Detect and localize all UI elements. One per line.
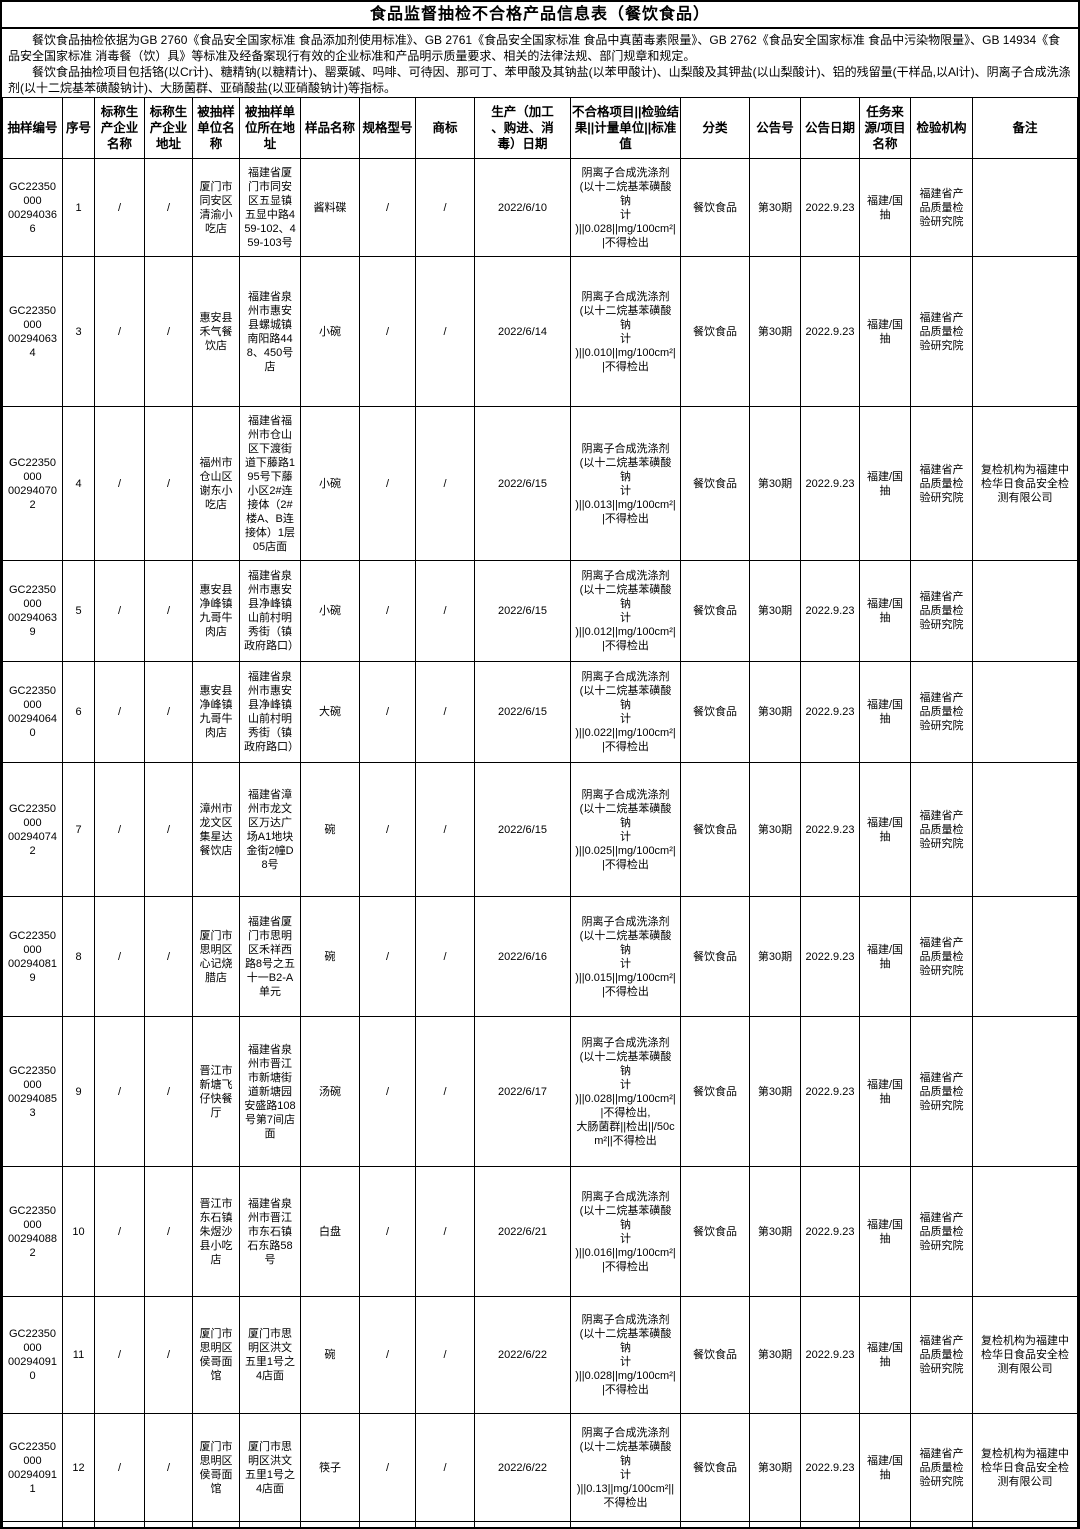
table-cell: GC22350000 002940742 (3, 763, 63, 897)
table-row: GC22350000 0029406406//惠安县净峰镇九哥牛肉店福建省泉州市… (3, 662, 1078, 763)
table-cell (193, 1522, 240, 1529)
table-cell (475, 1522, 571, 1529)
col-header-sample-number: 抽样编号 (3, 98, 63, 159)
table-cell: 9 (63, 1017, 95, 1167)
table-cell: 小碗 (301, 257, 360, 407)
table-body: GC22350000 0029403661//厦门市同安区清渝小吃店福建省厦门市… (3, 159, 1078, 1529)
table-cell: / (416, 159, 475, 257)
table-cell: 福建省漳州市龙文区万达广场A1地块金街2幢D8号 (240, 763, 301, 897)
table-cell: 福建省产品质量检验研究院 (911, 662, 973, 763)
table-cell: 餐饮食品 (681, 561, 750, 662)
table-cell: / (145, 257, 193, 407)
table-cell (63, 1522, 95, 1529)
col-header-inspection-agency: 检验机构 (911, 98, 973, 159)
table-cell: / (416, 662, 475, 763)
table-cell: 福建省厦门市思明区禾祥西路8号之五十一B2-A单元 (240, 897, 301, 1017)
table-cell: 10 (63, 1167, 95, 1297)
table-cell: 12 (63, 1414, 95, 1522)
table-cell: / (416, 1167, 475, 1297)
table-cell: / (95, 159, 145, 257)
table-cell: 第30期 (750, 1414, 801, 1522)
table-cell: 2022/6/15 (475, 662, 571, 763)
table-cell: 福建/国抽 (860, 1414, 911, 1522)
table-cell: 餐饮食品 (681, 897, 750, 1017)
table-cell (571, 1522, 681, 1529)
col-header-index: 序号 (63, 98, 95, 159)
table-cell: 福建/国抽 (860, 763, 911, 897)
table-cell: / (360, 662, 416, 763)
table-cell: 2022.9.23 (801, 1167, 860, 1297)
table-cell: 2022/6/17 (475, 1017, 571, 1167)
table-cell: / (360, 561, 416, 662)
table-cell: 福建/国抽 (860, 257, 911, 407)
table-cell: / (145, 407, 193, 561)
table-cell: 8 (63, 897, 95, 1017)
table-cell (416, 1522, 475, 1529)
table-cell: / (416, 1297, 475, 1414)
table-cell: 福建省泉州市晋江市东石镇石东路58号 (240, 1167, 301, 1297)
table-cell (301, 1522, 360, 1529)
table-cell: 餐饮食品 (681, 159, 750, 257)
table-cell: 福建省泉州市惠安县净峰镇山前村明秀街（镇政府路口） (240, 561, 301, 662)
table-cell: 阴离子合成洗涤剂 (以十二烷基苯磺酸钠 计 )||0.010||mg/100cm… (571, 257, 681, 407)
table-cell: / (145, 1297, 193, 1414)
table-cell: 第30期 (750, 662, 801, 763)
table-cell: 2022.9.23 (801, 1017, 860, 1167)
table-cell: 福建/国抽 (860, 1017, 911, 1167)
table-cell: 福建省产品质量检验研究院 (911, 763, 973, 897)
table-row: GC22350000 0029407427//漳州市龙文区集星达餐饮店福建省漳州… (3, 763, 1078, 897)
table-cell: 碗 (301, 763, 360, 897)
table-cell: / (360, 257, 416, 407)
table-cell: / (95, 561, 145, 662)
table-cell: 大碗 (301, 662, 360, 763)
table-cell: 福建省泉州市惠安县螺城镇南阳路448、450号店 (240, 257, 301, 407)
table-cell: 6 (63, 662, 95, 763)
table-cell: 餐饮食品 (681, 1167, 750, 1297)
table-cell: 白盘 (301, 1167, 360, 1297)
table-cell: 福建/国抽 (860, 561, 911, 662)
table-cell: / (145, 1414, 193, 1522)
table-cell: 阴离子合成洗涤剂 (以十二烷基苯磺酸钠 计 )||0.022||mg/100cm… (571, 662, 681, 763)
table-cell: 2022.9.23 (801, 1297, 860, 1414)
table-cell: 餐饮食品 (681, 1297, 750, 1414)
table-cell: GC22350000 002940910 (3, 1297, 63, 1414)
table-cell: / (360, 1297, 416, 1414)
table-row: GC22350000 0029403661//厦门市同安区清渝小吃店福建省厦门市… (3, 159, 1078, 257)
inspection-table: 抽样编号 序号 标称生产企业名称 标称生产企业地址 被抽样单位名称 被抽样单位所… (2, 97, 1078, 1529)
table-cell: 阴离子合成洗涤剂 (以十二烷基苯磺酸钠 计 )||0.016||mg/100cm… (571, 1167, 681, 1297)
table-cell: 2022/6/16 (475, 897, 571, 1017)
table-cell: 阴离子合成洗涤剂 (以十二烷基苯磺酸钠 计 )||0.025||mg/100cm… (571, 763, 681, 897)
table-cell: 2022/6/15 (475, 407, 571, 561)
table-cell: 2022/6/21 (475, 1167, 571, 1297)
table-cell: 厦门市思明区心记烧腊店 (193, 897, 240, 1017)
table-cell (973, 1522, 1078, 1529)
table-cell: 复检机构为福建中检华日食品安全检测有限公司 (973, 1297, 1078, 1414)
table-cell: 2022.9.23 (801, 257, 860, 407)
table-cell: 2022/6/15 (475, 561, 571, 662)
table-cell: 第30期 (750, 561, 801, 662)
table-cell (3, 1522, 63, 1529)
table-cell: 餐饮食品 (681, 407, 750, 561)
inspection-report-document: 食品监督抽检不合格产品信息表（餐饮食品） 餐饮食品抽检依据为GB 2760《食品… (0, 0, 1080, 1529)
table-cell: 厦门市思明区洪文五里1号之4店面 (240, 1297, 301, 1414)
table-cell: / (95, 662, 145, 763)
table-cell: 第30期 (750, 1167, 801, 1297)
table-cell: 5 (63, 561, 95, 662)
table-row: GC22350000 00294091011//厦门市思明区侯哥面馆厦门市思明区… (3, 1297, 1078, 1414)
table-cell: 餐饮食品 (681, 1017, 750, 1167)
table-cell: 第30期 (750, 1017, 801, 1167)
table-row: GC22350000 0029408539//晋江市新塘飞仔快餐厅福建省泉州市晋… (3, 1017, 1078, 1167)
intro-paragraph-basis: 餐饮食品抽检依据为GB 2760《食品安全国家标准 食品添加剂使用标准》、GB … (8, 32, 1072, 64)
table-cell: 筷子 (301, 1414, 360, 1522)
col-header-sampled-unit-address: 被抽样单位所在地址 (240, 98, 301, 159)
table-cell: GC22350000 002940819 (3, 897, 63, 1017)
table-cell: 福州市仓山区谢东小吃店 (193, 407, 240, 561)
col-header-sampled-unit-name: 被抽样单位名称 (193, 98, 240, 159)
table-cell: 2022/6/22 (475, 1414, 571, 1522)
table-cell: 漳州市龙文区集星达餐饮店 (193, 763, 240, 897)
table-cell: 小碗 (301, 407, 360, 561)
col-header-category: 分类 (681, 98, 750, 159)
table-cell (681, 1522, 750, 1529)
table-cell: 2022.9.23 (801, 561, 860, 662)
table-cell: 阴离子合成洗涤剂 (以十二烷基苯磺酸钠 计 )||0.013||mg/100cm… (571, 407, 681, 561)
table-cell: 福建/国抽 (860, 662, 911, 763)
table-cell: 福建省产品质量检验研究院 (911, 897, 973, 1017)
table-cell: GC22350000 002940702 (3, 407, 63, 561)
table-cell: / (360, 1017, 416, 1167)
table-cell: 阴离子合成洗涤剂 (以十二烷基苯磺酸钠 计 )||0.015||mg/100cm… (571, 897, 681, 1017)
table-cell: / (416, 257, 475, 407)
table-cell: 复检机构为福建中检华日食品安全检测有限公司 (973, 407, 1078, 561)
table-cell: 复检机构为福建中检华日食品安全检测有限公司 (973, 1414, 1078, 1522)
table-cell: 第30期 (750, 897, 801, 1017)
table-cell: 福建/国抽 (860, 1297, 911, 1414)
table-row: GC22350000 0029406395//惠安县净峰镇九哥牛肉店福建省泉州市… (3, 561, 1078, 662)
table-cell: 3 (63, 257, 95, 407)
table-row: GC22350000 0029407024//福州市仓山区谢东小吃店福建省福州市… (3, 407, 1078, 561)
table-cell (973, 159, 1078, 257)
table-cell: 第30期 (750, 763, 801, 897)
table-cell: 阴离子合成洗涤剂 (以十二烷基苯磺酸钠 计 )||0.028||mg/100cm… (571, 159, 681, 257)
table-cell: / (416, 897, 475, 1017)
table-cell (801, 1522, 860, 1529)
table-cell: / (145, 763, 193, 897)
col-header-notice-date: 公告日期 (801, 98, 860, 159)
col-header-remarks: 备注 (973, 98, 1078, 159)
table-cell (911, 1522, 973, 1529)
table-cell: 第30期 (750, 159, 801, 257)
table-cell: / (95, 1297, 145, 1414)
table-cell: 2022/6/22 (475, 1297, 571, 1414)
table-cell: / (145, 897, 193, 1017)
table-cell (95, 1522, 145, 1529)
table-cell: 厦门市同安区清渝小吃店 (193, 159, 240, 257)
table-cell: 福建/国抽 (860, 159, 911, 257)
table-cell: / (416, 763, 475, 897)
table-cell: GC22350000 002940853 (3, 1017, 63, 1167)
table-cell: / (95, 1017, 145, 1167)
table-row: GC22350000 0029406343//惠安县禾气餐饮店福建省泉州市惠安县… (3, 257, 1078, 407)
table-cell: 福建省产品质量检验研究院 (911, 1297, 973, 1414)
table-cell: 阴离子合成洗涤剂 (以十二烷基苯磺酸钠 计 )||0.13||mg/100cm²… (571, 1414, 681, 1522)
table-cell: / (360, 1414, 416, 1522)
table-cell: 福建/国抽 (860, 407, 911, 561)
table-cell: 阴离子合成洗涤剂 (以十二烷基苯磺酸钠 计 )||0.028||mg/100cm… (571, 1017, 681, 1167)
table-cell: 福建省产品质量检验研究院 (911, 561, 973, 662)
col-header-spec-model: 规格型号 (360, 98, 416, 159)
table-cell: 福建/国抽 (860, 897, 911, 1017)
table-cell: 2022/6/10 (475, 159, 571, 257)
table-cell: 福建省产品质量检验研究院 (911, 1414, 973, 1522)
table-cell: 碗 (301, 1297, 360, 1414)
table-cell: 2022/6/15 (475, 763, 571, 897)
intro-paragraph-items: 餐饮食品抽检项目包括铬(以Cr计)、糖精钠(以糖精计)、罂粟碱、吗啡、可待因、那… (8, 64, 1072, 96)
table-cell (973, 897, 1078, 1017)
table-cell: / (360, 763, 416, 897)
table-cell: 福建省产品质量检验研究院 (911, 159, 973, 257)
table-cell: 晋江市东石镇朱煜沙县小吃店 (193, 1167, 240, 1297)
table-cell (860, 1522, 911, 1529)
table-cell: / (95, 257, 145, 407)
table-cell: / (416, 407, 475, 561)
col-header-producer-name: 标称生产企业名称 (95, 98, 145, 159)
table-cell: / (95, 407, 145, 561)
table-row-partial (3, 1522, 1078, 1529)
table-cell (973, 763, 1078, 897)
table-cell: 第30期 (750, 407, 801, 561)
table-cell: 餐饮食品 (681, 257, 750, 407)
table-cell: GC22350000 002940639 (3, 561, 63, 662)
table-cell: 福建省泉州市惠安县净峰镇山前村明秀街（镇政府路口） (240, 662, 301, 763)
table-cell: / (360, 1167, 416, 1297)
table-cell: 汤碗 (301, 1017, 360, 1167)
table-cell: 7 (63, 763, 95, 897)
table-cell: 阴离子合成洗涤剂 (以十二烷基苯磺酸钠 计 )||0.012||mg/100cm… (571, 561, 681, 662)
table-cell: 福建省厦门市同安区五显镇五显中路459-102、459-103号 (240, 159, 301, 257)
table-cell: 惠安县禾气餐饮店 (193, 257, 240, 407)
table-cell: 小碗 (301, 561, 360, 662)
table-cell: GC22350000 002940366 (3, 159, 63, 257)
table-cell: 第30期 (750, 257, 801, 407)
table-cell (973, 257, 1078, 407)
table-cell (145, 1522, 193, 1529)
col-header-production-date: 生产（加工 、购进、消 毒）日期 (475, 98, 571, 159)
table-cell (973, 662, 1078, 763)
page-title: 食品监督抽检不合格产品信息表（餐饮食品） (2, 2, 1078, 29)
table-cell (973, 561, 1078, 662)
table-cell: 2022/6/14 (475, 257, 571, 407)
table-cell: / (145, 561, 193, 662)
table-cell: 厦门市思明区洪文五里1号之4店面 (240, 1414, 301, 1522)
table-cell: GC22350000 002940882 (3, 1167, 63, 1297)
col-header-producer-address: 标称生产企业地址 (145, 98, 193, 159)
table-cell: / (145, 1017, 193, 1167)
table-cell: / (360, 159, 416, 257)
table-cell: 厦门市思明区侯哥面馆 (193, 1414, 240, 1522)
table-cell: 福建省福州市仓山区下渡街道下藤路195号下藤小区2#连接体（2#楼A、B连接体）… (240, 407, 301, 561)
table-cell (973, 1167, 1078, 1297)
table-cell: / (145, 1167, 193, 1297)
table-cell: 福建省产品质量检验研究院 (911, 257, 973, 407)
table-cell: 福建省泉州市晋江市新塘街道新塘园安盛路108号第7间店面 (240, 1017, 301, 1167)
table-header-row: 抽样编号 序号 标称生产企业名称 标称生产企业地址 被抽样单位名称 被抽样单位所… (3, 98, 1078, 159)
table-cell: 碗 (301, 897, 360, 1017)
table-cell: 福建省产品质量检验研究院 (911, 1167, 973, 1297)
table-cell: 晋江市新塘飞仔快餐厅 (193, 1017, 240, 1167)
table-cell: 惠安县净峰镇九哥牛肉店 (193, 561, 240, 662)
table-cell: / (95, 763, 145, 897)
table-cell: GC22350000 002940640 (3, 662, 63, 763)
table-cell: 2022.9.23 (801, 407, 860, 561)
table-cell: 2022.9.23 (801, 897, 860, 1017)
table-cell: / (360, 897, 416, 1017)
intro-text: 餐饮食品抽检依据为GB 2760《食品安全国家标准 食品添加剂使用标准》、GB … (2, 29, 1078, 97)
table-cell: / (360, 407, 416, 561)
table-row: GC22350000 0029408198//厦门市思明区心记烧腊店福建省厦门市… (3, 897, 1078, 1017)
table-cell: 福建省产品质量检验研究院 (911, 407, 973, 561)
table-cell (360, 1522, 416, 1529)
table-cell: 2022.9.23 (801, 763, 860, 897)
table-cell: 2022.9.23 (801, 159, 860, 257)
table-cell: GC22350000 002940911 (3, 1414, 63, 1522)
col-header-task-source: 任务来源/项目名称 (860, 98, 911, 159)
table-cell: 第30期 (750, 1297, 801, 1414)
table-cell: 餐饮食品 (681, 662, 750, 763)
table-cell: 惠安县净峰镇九哥牛肉店 (193, 662, 240, 763)
table-cell: 酱料碟 (301, 159, 360, 257)
table-cell: 餐饮食品 (681, 1414, 750, 1522)
table-cell: / (95, 897, 145, 1017)
table-cell: / (95, 1167, 145, 1297)
table-cell: / (145, 159, 193, 257)
col-header-failed-item-result: 不合格项目||检验结果||计量单位||标准值 (571, 98, 681, 159)
col-header-sample-name: 样品名称 (301, 98, 360, 159)
table-cell: 餐饮食品 (681, 763, 750, 897)
table-cell: 厦门市思明区侯哥面馆 (193, 1297, 240, 1414)
table-cell: 阴离子合成洗涤剂 (以十二烷基苯磺酸钠 计 )||0.028||mg/100cm… (571, 1297, 681, 1414)
table-row: GC22350000 00294088210//晋江市东石镇朱煜沙县小吃店福建省… (3, 1167, 1078, 1297)
table-cell (973, 1017, 1078, 1167)
table-cell: GC22350000 002940634 (3, 257, 63, 407)
table-cell: 4 (63, 407, 95, 561)
table-cell: 2022.9.23 (801, 662, 860, 763)
table-cell: 1 (63, 159, 95, 257)
table-cell: 福建省产品质量检验研究院 (911, 1017, 973, 1167)
col-header-notice-number: 公告号 (750, 98, 801, 159)
table-cell: 2022.9.23 (801, 1414, 860, 1522)
table-cell: / (416, 561, 475, 662)
table-cell (240, 1522, 301, 1529)
table-cell: / (145, 662, 193, 763)
table-cell: 11 (63, 1297, 95, 1414)
col-header-brand: 商标 (416, 98, 475, 159)
table-cell (750, 1522, 801, 1529)
table-cell: 福建/国抽 (860, 1167, 911, 1297)
table-cell: / (416, 1017, 475, 1167)
table-cell: / (95, 1414, 145, 1522)
table-row: GC22350000 00294091112//厦门市思明区侯哥面馆厦门市思明区… (3, 1414, 1078, 1522)
table-cell: / (416, 1414, 475, 1522)
